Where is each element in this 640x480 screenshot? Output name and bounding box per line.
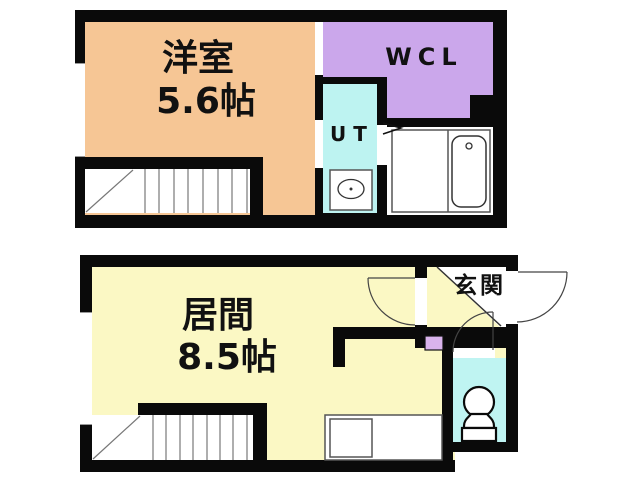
lower-floor-plan: 居間 8.5帖 玄関	[80, 255, 567, 472]
floor-plan-svg: 洋室 5.6帖 WCL UT	[0, 0, 640, 480]
door-gap-toilet	[453, 348, 495, 358]
storage-box	[425, 336, 443, 350]
partition-wall-horizontal	[333, 327, 415, 339]
toilet-bottom-wall	[442, 442, 518, 452]
upper-floor-plan: 洋室 5.6帖 WCL UT	[75, 10, 507, 228]
wcl-label: WCL	[385, 43, 462, 71]
bathtub-icon	[392, 130, 490, 212]
window-upper	[75, 63, 85, 157]
window-lower	[80, 312, 92, 425]
door-gap-ut	[315, 120, 323, 168]
kitchen-counter	[325, 415, 442, 460]
stairs-upper	[75, 157, 263, 215]
western-room-name: 洋室	[162, 38, 234, 79]
door-gap-entrance	[506, 271, 518, 324]
toilet-left-wall	[442, 340, 453, 472]
door-gap-living	[415, 278, 427, 325]
door-gap-wcl	[315, 22, 323, 75]
sink-icon	[330, 170, 372, 210]
outside-notch	[455, 452, 518, 472]
living-room-name: 居間	[182, 295, 254, 336]
western-room-size: 5.6帖	[156, 81, 256, 122]
partition-wall-stub	[333, 327, 345, 367]
floor-plan-page: 洋室 5.6帖 WCL UT	[0, 0, 640, 480]
hall-wall-top	[415, 267, 427, 278]
entrance-door-arc	[517, 272, 567, 322]
ut-label: UT	[330, 122, 374, 146]
door-gap-bath	[377, 125, 387, 165]
kitchen-sink	[330, 419, 372, 457]
living-room-size: 8.5帖	[177, 337, 277, 378]
entrance-label: 玄関	[454, 272, 506, 299]
